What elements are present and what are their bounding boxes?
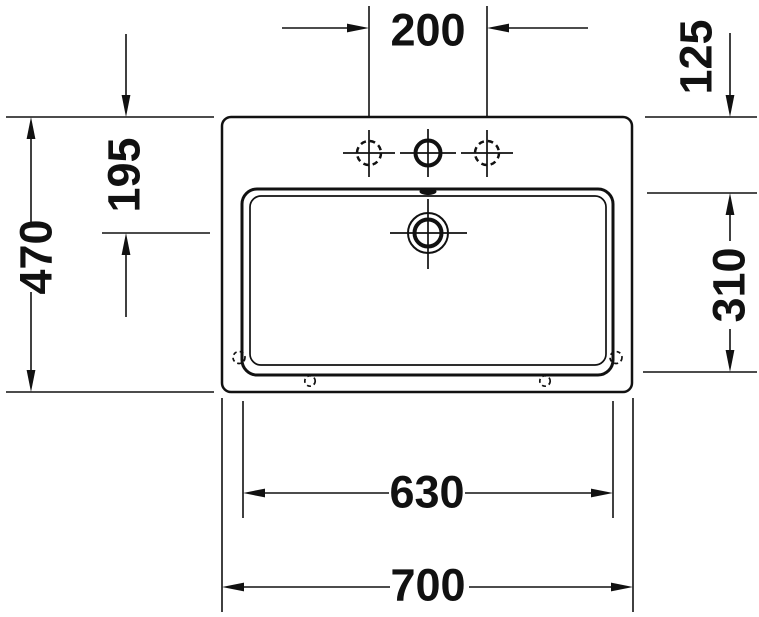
arrowhead-left-icon: [243, 489, 265, 498]
arrowhead-down-icon: [726, 95, 735, 117]
dimension-label-630: 630: [389, 467, 464, 518]
dimension-label-200: 200: [390, 5, 465, 56]
arrowhead-down-icon: [122, 95, 131, 117]
washbasin-body: [222, 117, 632, 392]
drain: [390, 199, 467, 269]
tap-holes: [343, 129, 513, 177]
arrowhead-up-icon: [27, 117, 36, 139]
arrowhead-up-icon: [726, 193, 735, 215]
arrowhead-up-icon: [122, 233, 131, 255]
sink-outer-edge: [222, 117, 632, 392]
arrowhead-down-icon: [27, 370, 36, 392]
arrowhead-right-icon: [347, 24, 369, 33]
dimension-label-700: 700: [390, 560, 465, 611]
dimension-310: 310: [643, 193, 757, 372]
dimension-200: 200: [282, 5, 588, 117]
dimension-125: 125: [645, 19, 757, 117]
dimension-label-125: 125: [671, 19, 722, 94]
arrowhead-right-icon: [611, 583, 633, 592]
dimension-195: 195: [99, 34, 211, 317]
dimension-label-310: 310: [704, 247, 755, 322]
arrowhead-right-icon: [591, 489, 613, 498]
fixing-hole-deck-right: [540, 376, 550, 386]
fixing-hole-deck-left: [305, 376, 315, 386]
fixing-holes: [233, 352, 622, 387]
arrowhead-left-icon: [487, 24, 509, 33]
overflow-slot: [420, 188, 437, 195]
dimension-630: 630: [243, 401, 613, 518]
technical-drawing-canvas: 200 125 195 470 310: [0, 0, 759, 617]
washbasin-dimension-drawing: 200 125 195 470 310: [0, 0, 759, 617]
arrowhead-down-icon: [726, 350, 735, 372]
arrowhead-left-icon: [222, 583, 244, 592]
dimension-label-195: 195: [99, 137, 150, 212]
dimension-label-470: 470: [11, 219, 62, 294]
